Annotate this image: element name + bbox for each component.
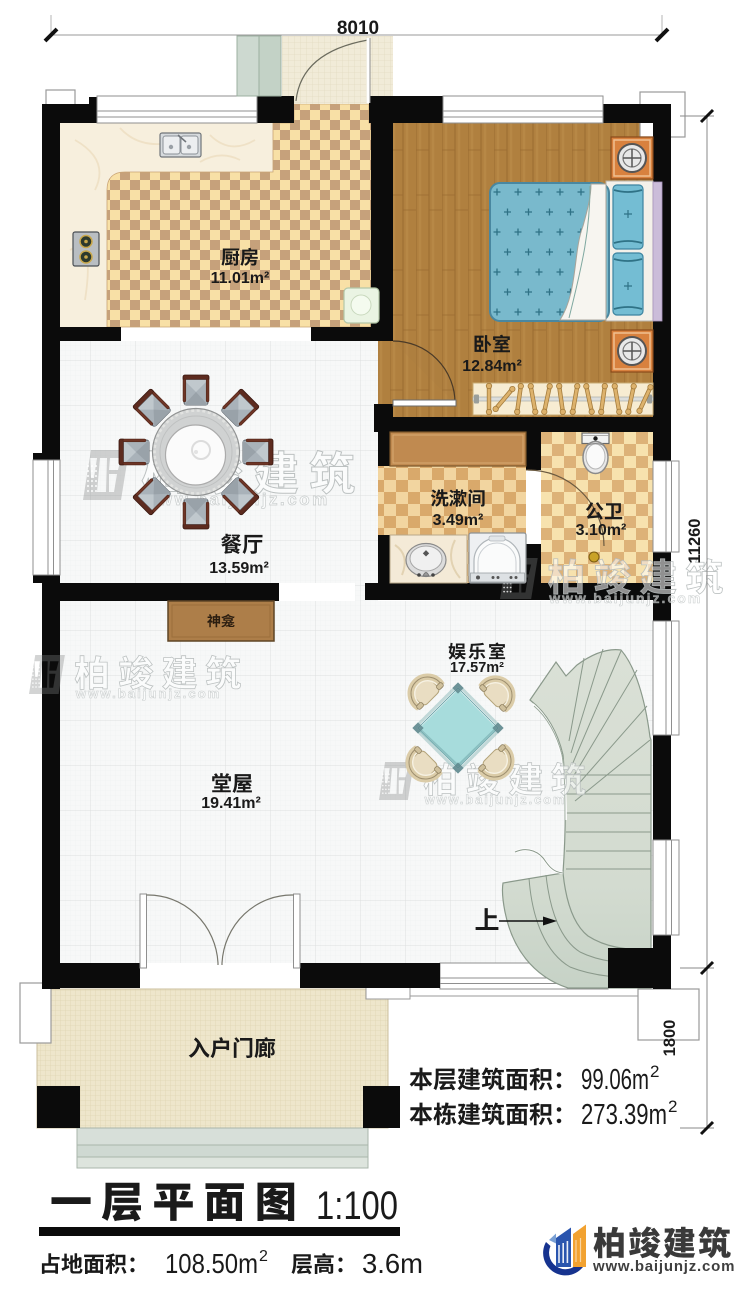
- svg-text:2: 2: [650, 1062, 659, 1081]
- svg-text:3.49m²: 3.49m²: [433, 512, 484, 529]
- svg-text:99.06m: 99.06m: [581, 1064, 649, 1096]
- svg-text:108.50m: 108.50m: [165, 1248, 258, 1279]
- svg-text:11260: 11260: [686, 519, 704, 564]
- svg-text:2: 2: [259, 1248, 268, 1265]
- svg-text:1:100: 1:100: [316, 1184, 398, 1228]
- svg-text:17.57m²: 17.57m²: [450, 660, 504, 676]
- svg-text:www.baijunjz.com: www.baijunjz.com: [424, 792, 567, 807]
- svg-text:2: 2: [668, 1097, 677, 1116]
- svg-text:8010: 8010: [337, 18, 379, 39]
- svg-text:273.39m: 273.39m: [581, 1099, 667, 1131]
- svg-text:19.41m²: 19.41m²: [201, 795, 261, 812]
- svg-text:1800: 1800: [661, 1020, 679, 1057]
- svg-text:12.84m²: 12.84m²: [462, 358, 522, 375]
- svg-text:www.baijunjz.com: www.baijunjz.com: [548, 590, 702, 606]
- svg-text:www.baijunjz.com: www.baijunjz.com: [592, 1258, 735, 1275]
- svg-text:3.10m²: 3.10m²: [576, 522, 627, 539]
- svg-text:www.baijunjz.com: www.baijunjz.com: [75, 686, 222, 701]
- svg-text:13.59m²: 13.59m²: [209, 560, 269, 577]
- svg-text:3.6m: 3.6m: [362, 1248, 423, 1279]
- svg-text:11.01m²: 11.01m²: [211, 270, 270, 287]
